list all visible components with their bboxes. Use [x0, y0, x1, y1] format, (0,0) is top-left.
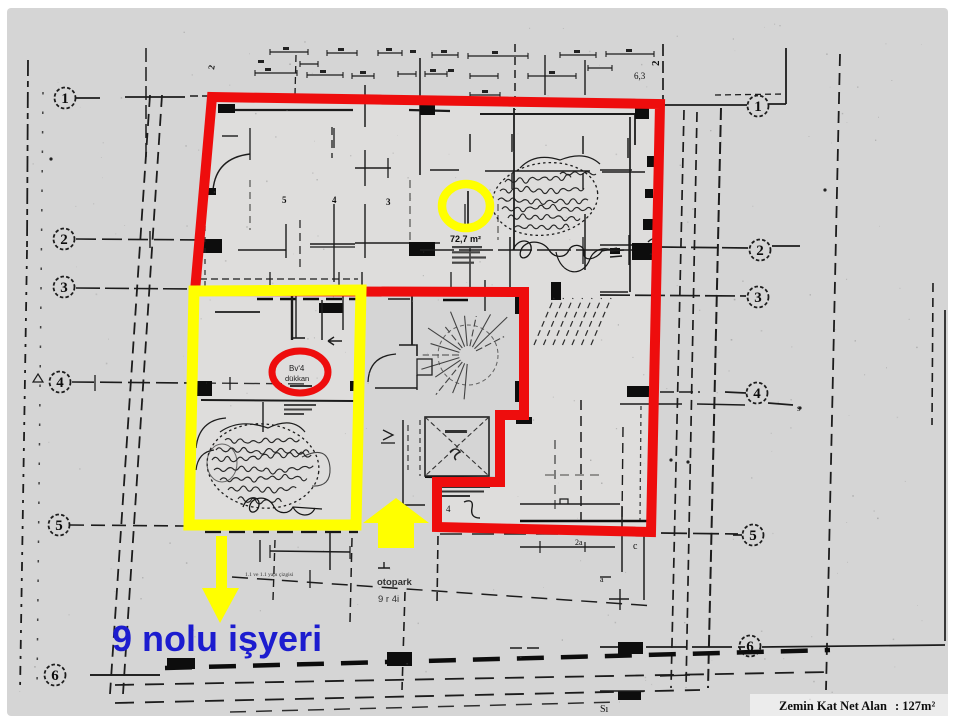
svg-text:5: 5 — [749, 528, 757, 544]
svg-text:3: 3 — [60, 280, 68, 296]
svg-text:a: a — [600, 575, 604, 584]
svg-text:2: 2 — [756, 243, 764, 259]
svg-text:2: 2 — [650, 60, 662, 66]
svg-text:4: 4 — [446, 504, 451, 514]
svg-text:1: 1 — [754, 99, 762, 115]
svg-text:2: 2 — [60, 232, 68, 248]
svg-text:9 nolu işyeri: 9 nolu işyeri — [112, 618, 322, 659]
svg-text:Sı: Sı — [600, 704, 609, 715]
svg-text:Bvʹ4: Bvʹ4 — [289, 364, 305, 373]
svg-text:9 r 4i: 9 r 4i — [378, 594, 399, 605]
svg-text:72,7 m²: 72,7 m² — [450, 234, 481, 244]
svg-text:dükkan: dükkan — [285, 374, 309, 383]
svg-text:otopark: otopark — [377, 577, 413, 588]
svg-text:: 127m²: : 127m² — [895, 699, 935, 713]
svg-text:c: c — [633, 541, 638, 552]
svg-text:3: 3 — [754, 290, 762, 306]
svg-text:1.1 ve 1.1 yapı çizgisi: 1.1 ve 1.1 yapı çizgisi — [245, 572, 294, 578]
svg-text:4: 4 — [56, 375, 64, 391]
svg-text:6,3: 6,3 — [634, 71, 646, 81]
svg-text:6: 6 — [51, 668, 59, 684]
svg-text:4: 4 — [753, 386, 761, 402]
svg-text:Zemin Kat Net Alan: Zemin Kat Net Alan — [779, 699, 887, 713]
svg-text:2a: 2a — [575, 538, 583, 547]
svg-text:1: 1 — [61, 91, 69, 107]
svg-text:4: 4 — [332, 195, 337, 205]
svg-text:5: 5 — [282, 195, 287, 205]
svg-text:3: 3 — [386, 197, 391, 207]
svg-text:5: 5 — [55, 518, 63, 534]
